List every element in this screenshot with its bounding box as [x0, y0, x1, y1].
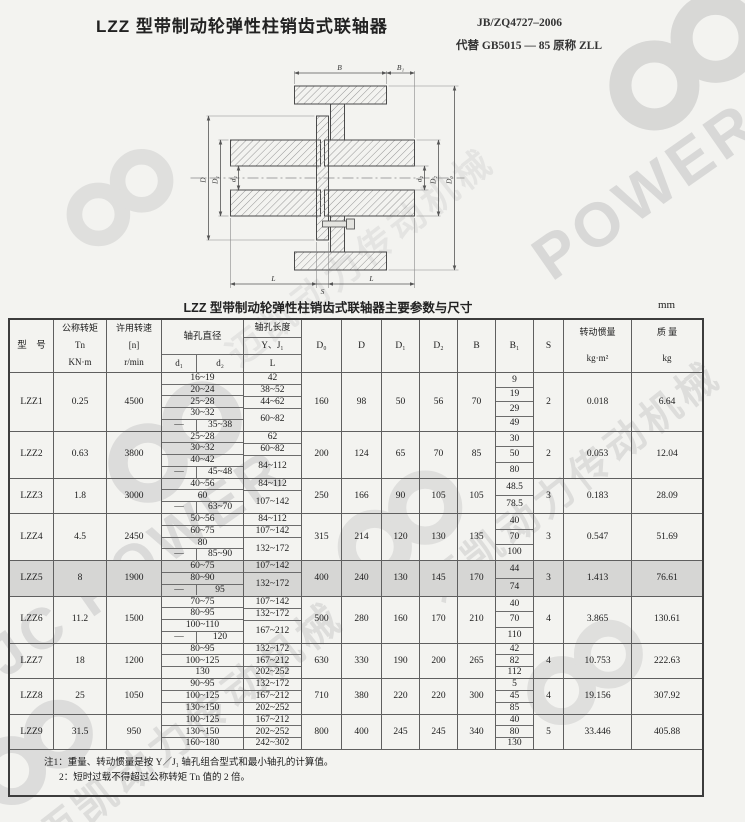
cell-D2: 200: [420, 644, 458, 679]
bore-length-range: 84~112: [244, 514, 301, 525]
bore-diameter-range: 130: [162, 666, 243, 678]
B1-value: 49: [496, 416, 533, 431]
dim-label-D0: D₀: [445, 176, 454, 185]
cell-D: 240: [342, 561, 382, 596]
cell-D0: 710: [302, 679, 342, 714]
cell-mass: 222.63: [632, 644, 702, 679]
bore-length-range: 167~212: [244, 654, 301, 666]
cell-bore-length: 84~112107~142: [244, 479, 302, 514]
catalog-page: POWERMJC POWER迈凯动力传动机械迈凯动力传动机械迈凯动力传动机械 L…: [0, 0, 745, 822]
cell-model: LZZ1: [10, 373, 54, 431]
table-row-LZZ1: LZZ10.25450016~1920~2425~2830~32—35~3842…: [10, 372, 702, 431]
bore-length-range: 132~172: [244, 644, 301, 655]
bore-diameter-range: 30~32: [162, 407, 243, 419]
table-row-LZZ8: LZZ825105090~95100~125130~150132~172167~…: [10, 678, 702, 714]
col-header-B1: B₁: [496, 320, 534, 372]
col-header-inertia: 转动惯量 kg·m²: [564, 320, 632, 372]
cell-B: 105: [458, 479, 496, 514]
cell-speed: 3000: [107, 479, 162, 514]
cell-D1: 130: [382, 561, 420, 596]
bore-length-range: 202~252: [244, 725, 301, 737]
cell-bore-diameter: 25~2830~3240~42—45~48: [162, 432, 244, 478]
cell-mass: 405.88: [632, 715, 702, 750]
B1-value: 100: [496, 544, 533, 560]
cell-S: 4: [534, 679, 564, 714]
cell-inertia: 33.446: [564, 715, 632, 750]
bore-length-range: 242~302: [244, 737, 301, 749]
bore-length-range: 167~212: [244, 690, 301, 702]
cell-bore-length: 84~112107~142132~172: [244, 514, 302, 560]
cell-torque: 4.5: [54, 514, 107, 560]
bore-length-range: 38~52: [244, 384, 301, 396]
bore-diameter-range: 60~75: [162, 561, 243, 572]
dim-label-B: B: [337, 63, 342, 72]
cell-D: 380: [342, 679, 382, 714]
cell-B: 300: [458, 679, 496, 714]
cell-S: 5: [534, 715, 564, 750]
B1-value: 9: [496, 373, 533, 387]
col-header-speed: 许用转速 [n] r/min: [107, 320, 162, 372]
cell-D: 214: [342, 514, 382, 560]
cell-B1: 4070110: [496, 597, 534, 643]
B1-value: 48.5: [496, 479, 533, 496]
bore-length-range: 202~252: [244, 666, 301, 678]
cell-mass: 12.04: [632, 432, 702, 478]
B1-value: 44: [496, 561, 533, 578]
cell-D1: 65: [382, 432, 420, 478]
col-header-d2: d₂: [197, 355, 243, 372]
bore-length-range: 42: [244, 373, 301, 384]
col-header-D0: D₀: [302, 320, 342, 372]
cell-model: LZZ5: [10, 561, 54, 596]
cell-D2: 220: [420, 679, 458, 714]
bore-diameter-range: 80~95: [162, 644, 243, 655]
cell-S: 2: [534, 432, 564, 478]
cell-S: 3: [534, 479, 564, 514]
cell-bore-diameter: 16~1920~2425~2830~32—35~38: [162, 373, 244, 431]
cell-D1: 160: [382, 597, 420, 643]
bore-diameter-range: —35~38: [162, 419, 243, 431]
B1-value: 80: [496, 725, 533, 737]
bore-diameter-range: 100~125: [162, 654, 243, 666]
dim-label-d2: d₂: [415, 175, 424, 182]
no-d1-dash: —: [162, 585, 197, 596]
cell-D: 98: [342, 373, 382, 431]
cell-D2: 105: [420, 479, 458, 514]
cell-mass: 51.69: [632, 514, 702, 560]
d2-value: 95: [197, 585, 243, 596]
cell-inertia: 0.018: [564, 373, 632, 431]
bore-diameter-range: 16~19: [162, 373, 243, 384]
parameters-table: 型 号 公称转矩 Tn KN·m 许用转速 [n] r/min 轴孔直径 d₁ …: [8, 318, 704, 797]
col-header-D: D: [342, 320, 382, 372]
cell-mass: 307.92: [632, 679, 702, 714]
bore-length-range: 60~82: [244, 408, 301, 431]
cell-speed: 1200: [107, 644, 162, 679]
col-header-D2: D₂: [420, 320, 458, 372]
d2-value: 35~38: [197, 420, 243, 431]
col-header-D1: D₁: [382, 320, 420, 372]
cell-D2: 145: [420, 561, 458, 596]
dim-label-D2: D₂: [429, 176, 438, 185]
cell-D0: 630: [302, 644, 342, 679]
dim-label-D1: D₁: [211, 176, 220, 185]
no-d1-dash: —: [162, 502, 197, 513]
bore-length-range: 44~62: [244, 396, 301, 408]
cell-D0: 160: [302, 373, 342, 431]
cell-B: 340: [458, 715, 496, 750]
bore-length-range: 132~172: [244, 608, 301, 620]
cell-speed: 1500: [107, 597, 162, 643]
table-notes: 注1：重量、转动惯量是按 Y／J₁ 轴孔组合型式和最小轴孔的计算值。 2：短时过…: [10, 749, 702, 795]
unit-label: mm: [658, 299, 675, 311]
bore-diameter-range: 160~180: [162, 737, 243, 749]
bore-length-range: 60~82: [244, 443, 301, 455]
cell-B: 70: [458, 373, 496, 431]
cell-speed: 1050: [107, 679, 162, 714]
bore-diameter-range: 25~28: [162, 395, 243, 407]
B1-value: 110: [496, 627, 533, 643]
table-row-LZZ3: LZZ31.8300040~5660—63~7084~112107~142250…: [10, 478, 702, 514]
bore-diameter-range: 40~56: [162, 479, 243, 490]
cell-bore-diameter: 50~5660~7580—85~90: [162, 514, 244, 560]
cell-torque: 25: [54, 679, 107, 714]
bore-diameter-range: 20~24: [162, 384, 243, 396]
cell-bore-length: 132~172167~212202~252: [244, 679, 302, 714]
B1-value: 78.5: [496, 495, 533, 513]
cell-model: LZZ8: [10, 679, 54, 714]
bore-diameter-range: 100~125: [162, 715, 243, 726]
cell-D2: 70: [420, 432, 458, 478]
cell-bore-length: 107~142132~172167~212: [244, 597, 302, 643]
cell-inertia: 1.413: [564, 561, 632, 596]
cell-bore-diameter: 80~95100~125130: [162, 644, 244, 679]
table-row-LZZ4: LZZ44.5245050~5660~7580—85~9084~112107~1…: [10, 513, 702, 560]
bore-diameter-range: —63~70: [162, 501, 243, 513]
cell-D0: 200: [302, 432, 342, 478]
bore-diameter-range: 80: [162, 537, 243, 549]
note-1: 注1：重量、转动惯量是按 Y／J₁ 轴孔组合型式和最小轴孔的计算值。: [44, 756, 694, 771]
d2-value: 120: [197, 632, 243, 643]
cell-bore-diameter: 40~5660—63~70: [162, 479, 244, 514]
cell-B1: 4282112: [496, 644, 534, 679]
cell-D1: 120: [382, 514, 420, 560]
cell-B1: 4474: [496, 561, 534, 596]
cell-bore-length: 6260~8284~112: [244, 432, 302, 478]
dim-label-D: D: [199, 177, 208, 184]
bore-diameter-range: 40~42: [162, 454, 243, 466]
cell-bore-length: 107~142132~172: [244, 561, 302, 596]
bore-length-range: 107~142: [244, 490, 301, 513]
technical-drawing: B B₁ D D₁ d₁ d₂ D₂ D₀ L S L: [170, 58, 475, 298]
table-row-LZZ5: LZZ58190060~7580~90—95107~142132~1724002…: [10, 560, 702, 596]
dim-label-B1: B₁: [397, 63, 405, 72]
B1-value: 45: [496, 690, 533, 702]
cell-bore-length: 167~212202~252242~302: [244, 715, 302, 750]
table-row-LZZ2: LZZ20.63380025~2830~3240~42—45~486260~82…: [10, 431, 702, 478]
B1-value: 82: [496, 654, 533, 666]
cell-mass: 76.61: [632, 561, 702, 596]
bore-diameter-range: 25~28: [162, 432, 243, 443]
cell-torque: 18: [54, 644, 107, 679]
dim-label-d1: d₁: [229, 175, 238, 182]
B1-value: 130: [496, 737, 533, 749]
cell-D1: 90: [382, 479, 420, 514]
bore-diameter-range: 70~75: [162, 597, 243, 608]
cell-D2: 245: [420, 715, 458, 750]
cell-B1: 4070100: [496, 514, 534, 560]
cell-D0: 800: [302, 715, 342, 750]
B1-value: 40: [496, 514, 533, 529]
no-d1-dash: —: [162, 420, 197, 431]
cell-D: 400: [342, 715, 382, 750]
cell-inertia: 0.183: [564, 479, 632, 514]
cell-torque: 0.63: [54, 432, 107, 478]
cell-torque: 1.8: [54, 479, 107, 514]
cell-model: LZZ9: [10, 715, 54, 750]
cell-D1: 245: [382, 715, 420, 750]
cell-S: 4: [534, 644, 564, 679]
cell-model: LZZ2: [10, 432, 54, 478]
bore-length-range: 107~142: [244, 597, 301, 608]
cell-B: 265: [458, 644, 496, 679]
cell-inertia: 3.865: [564, 597, 632, 643]
standard-code: JB/ZQ4727–2006: [477, 17, 562, 29]
cell-B1: 305080: [496, 432, 534, 478]
cell-B1: 48.578.5: [496, 479, 534, 514]
cell-bore-diameter: 100~125130~150160~180: [162, 715, 244, 750]
cell-D0: 250: [302, 479, 342, 514]
cell-S: 3: [534, 514, 564, 560]
cell-B: 85: [458, 432, 496, 478]
table-row-LZZ9: LZZ931.5950100~125130~150160~180167~2122…: [10, 714, 702, 750]
cell-bore-diameter: 60~7580~90—95: [162, 561, 244, 596]
cell-speed: 3800: [107, 432, 162, 478]
cell-S: 2: [534, 373, 564, 431]
table-row-LZZ7: LZZ718120080~95100~125130132~172167~2122…: [10, 643, 702, 679]
B1-value: 74: [496, 578, 533, 596]
B1-value: 29: [496, 401, 533, 416]
bore-length-range: 84~112: [244, 455, 301, 478]
bore-diameter-range: 130~150: [162, 702, 243, 714]
no-d1-dash: —: [162, 467, 197, 478]
bore-length-range: 132~172: [244, 679, 301, 690]
cell-inertia: 0.053: [564, 432, 632, 478]
B1-value: 112: [496, 666, 533, 678]
cell-B1: 54585: [496, 679, 534, 714]
cell-mass: 28.09: [632, 479, 702, 514]
bore-length-range: 62: [244, 432, 301, 443]
col-header-model: 型 号: [10, 320, 54, 372]
B1-value: 30: [496, 432, 533, 447]
cell-model: LZZ7: [10, 644, 54, 679]
cell-speed: 1900: [107, 561, 162, 596]
cell-speed: 950: [107, 715, 162, 750]
cell-torque: 8: [54, 561, 107, 596]
d2-value: 45~48: [197, 467, 243, 478]
cell-D1: 190: [382, 644, 420, 679]
cell-D2: 130: [420, 514, 458, 560]
bore-length-range: 167~212: [244, 715, 301, 726]
cell-D: 124: [342, 432, 382, 478]
bore-diameter-range: 60: [162, 489, 243, 501]
cell-S: 4: [534, 597, 564, 643]
B1-value: 80: [496, 462, 533, 478]
bore-diameter-range: 80~90: [162, 572, 243, 584]
bore-diameter-range: —120: [162, 631, 243, 643]
cell-inertia: 19.156: [564, 679, 632, 714]
table-header-row: 型 号 公称转矩 Tn KN·m 许用转速 [n] r/min 轴孔直径 d₁ …: [10, 320, 702, 372]
cell-D2: 170: [420, 597, 458, 643]
cell-torque: 11.2: [54, 597, 107, 643]
table-title: LZZ 型带制动轮弹性柱销齿式联轴器主要参数与尺寸: [8, 297, 648, 316]
cell-bore-length: 132~172167~212202~252: [244, 644, 302, 679]
cell-model: LZZ4: [10, 514, 54, 560]
dim-label-S: S: [321, 287, 325, 296]
coupling-cross-section: B B₁ D D₁ d₁ d₂ D₂ D₀ L S L: [170, 58, 475, 298]
B1-value: 42: [496, 644, 533, 655]
cell-B1: 4080130: [496, 715, 534, 750]
bore-diameter-range: 130~150: [162, 725, 243, 737]
note-2: 2：短时过载不得超过公称转矩 Tn 值的 2 倍。: [59, 771, 694, 786]
cell-B: 135: [458, 514, 496, 560]
cell-inertia: 10.753: [564, 644, 632, 679]
dim-label-L-left: L: [270, 274, 275, 283]
cell-speed: 4500: [107, 373, 162, 431]
cell-D0: 315: [302, 514, 342, 560]
no-d1-dash: —: [162, 549, 197, 560]
cell-mass: 130.61: [632, 597, 702, 643]
cell-bore-length: 4238~5244~6260~82: [244, 373, 302, 431]
cell-D: 330: [342, 644, 382, 679]
col-header-bore-length: 轴孔长度 Y、J₁ L: [244, 320, 302, 372]
no-d1-dash: —: [162, 632, 197, 643]
cell-B1: 9192949: [496, 373, 534, 431]
bore-length-range: 132~172: [244, 572, 301, 595]
B1-value: 50: [496, 446, 533, 462]
d2-value: 63~70: [197, 502, 243, 513]
bore-diameter-range: 30~32: [162, 442, 243, 454]
B1-value: 40: [496, 715, 533, 726]
cell-D0: 400: [302, 561, 342, 596]
bore-length-range: 167~212: [244, 620, 301, 643]
bore-length-range: 107~142: [244, 561, 301, 572]
cell-bore-diameter: 90~95100~125130~150: [162, 679, 244, 714]
cell-D0: 500: [302, 597, 342, 643]
cell-D1: 220: [382, 679, 420, 714]
B1-value: 70: [496, 611, 533, 627]
replaced-standard: 代替 GB5015 — 85 原称 ZLL: [456, 37, 602, 53]
cell-torque: 0.25: [54, 373, 107, 431]
cell-D: 280: [342, 597, 382, 643]
cell-model: LZZ6: [10, 597, 54, 643]
cell-D2: 56: [420, 373, 458, 431]
cell-speed: 2450: [107, 514, 162, 560]
cell-S: 3: [534, 561, 564, 596]
col-header-d1: d₁: [162, 355, 197, 372]
cell-mass: 6.64: [632, 373, 702, 431]
col-header-torque: 公称转矩 Tn KN·m: [54, 320, 107, 372]
bore-diameter-range: 90~95: [162, 679, 243, 690]
bore-diameter-range: 100~125: [162, 690, 243, 702]
cell-torque: 31.5: [54, 715, 107, 750]
B1-value: 85: [496, 702, 533, 714]
col-header-B: B: [458, 320, 496, 372]
bore-length-range: 84~112: [244, 479, 301, 490]
bore-diameter-range: —95: [162, 584, 243, 596]
cell-bore-diameter: 70~7580~95100~110—120: [162, 597, 244, 643]
d2-value: 85~90: [197, 549, 243, 560]
B1-value: 19: [496, 387, 533, 402]
cell-B: 210: [458, 597, 496, 643]
bore-diameter-range: 80~95: [162, 607, 243, 619]
bore-diameter-range: —45~48: [162, 466, 243, 478]
bore-length-range: 107~142: [244, 525, 301, 537]
cell-B: 170: [458, 561, 496, 596]
dim-label-L-right: L: [368, 274, 373, 283]
bore-diameter-range: 50~56: [162, 514, 243, 525]
cell-model: LZZ3: [10, 479, 54, 514]
bore-diameter-range: 60~75: [162, 525, 243, 537]
cell-inertia: 0.547: [564, 514, 632, 560]
bore-length-range: 202~252: [244, 702, 301, 714]
bore-diameter-range: —85~90: [162, 548, 243, 560]
page-title: LZZ 型带制动轮弹性柱销齿式联轴器: [96, 12, 388, 37]
B1-value: 40: [496, 597, 533, 612]
cell-D: 166: [342, 479, 382, 514]
table-row-LZZ6: LZZ611.2150070~7580~95100~110—120107~142…: [10, 596, 702, 643]
B1-value: 5: [496, 679, 533, 690]
bore-diameter-range: 100~110: [162, 619, 243, 631]
col-header-S: S: [534, 320, 564, 372]
col-header-bore-diameter: 轴孔直径 d₁ d₂: [162, 320, 244, 372]
bore-length-range: 132~172: [244, 537, 301, 560]
col-header-mass: 质 量 kg: [632, 320, 702, 372]
B1-value: 70: [496, 529, 533, 545]
cell-D1: 50: [382, 373, 420, 431]
